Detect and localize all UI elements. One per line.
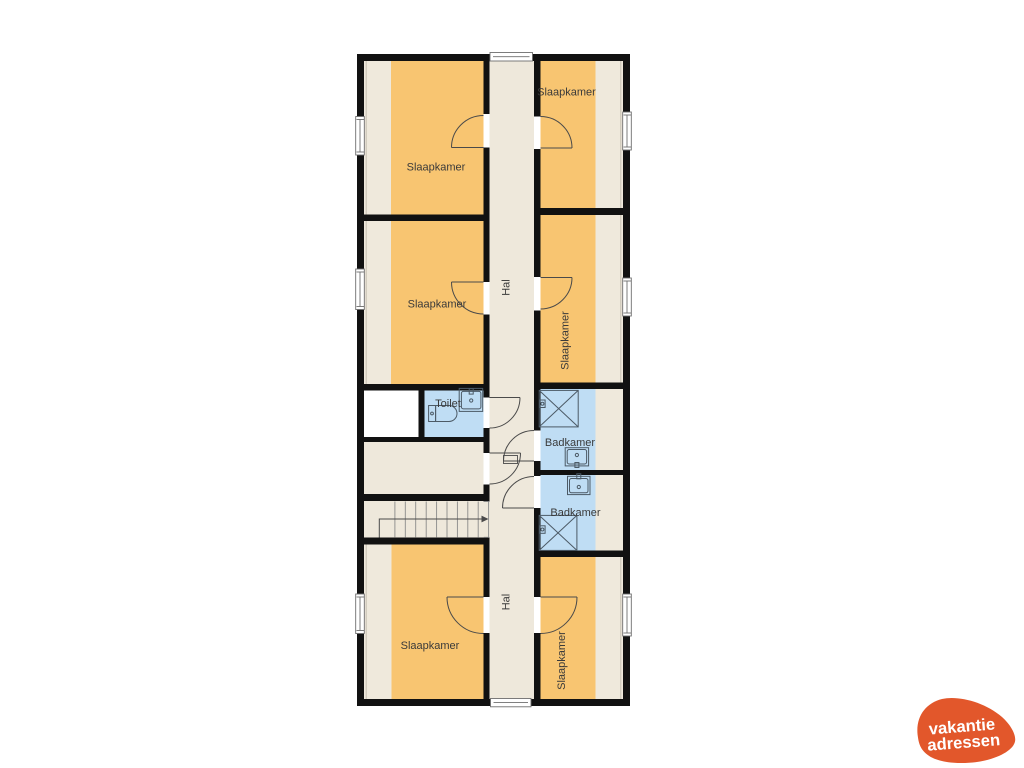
svg-text:Badkamer: Badkamer — [545, 437, 595, 449]
svg-text:Badkamer: Badkamer — [550, 507, 600, 519]
svg-text:Slaapkamer: Slaapkamer — [537, 87, 596, 99]
svg-text:Hal: Hal — [500, 279, 512, 296]
svg-text:Slaapkamer: Slaapkamer — [401, 640, 460, 652]
svg-text:Slaapkamer: Slaapkamer — [559, 311, 571, 370]
svg-text:Toilet: Toilet — [435, 398, 461, 410]
svg-text:Slaapkamer: Slaapkamer — [408, 298, 467, 310]
svg-text:Slaapkamer: Slaapkamer — [407, 162, 466, 174]
svg-text:Slaapkamer: Slaapkamer — [556, 631, 568, 690]
svg-text:Hal: Hal — [500, 594, 512, 611]
